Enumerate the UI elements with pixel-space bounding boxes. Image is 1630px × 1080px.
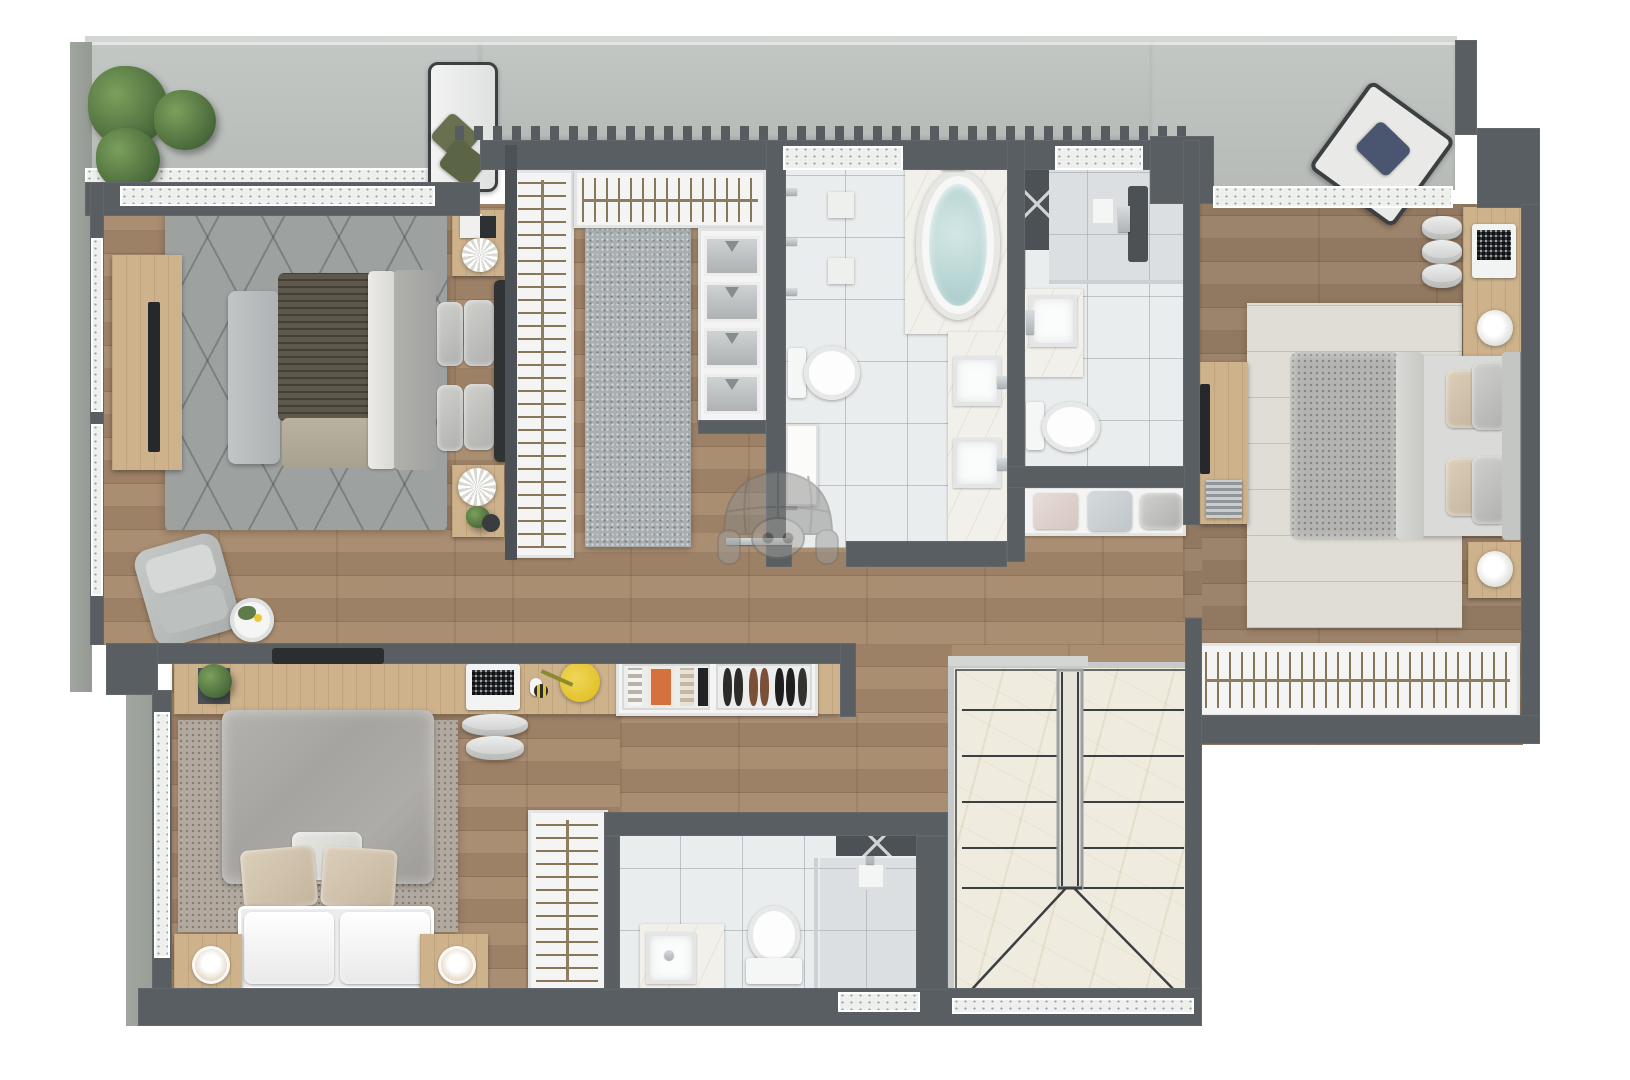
shoe [786, 668, 795, 706]
wall-east [1521, 204, 1540, 744]
faucet-icon [997, 376, 1007, 388]
chair-cushion [466, 736, 524, 760]
window-bath2 [1055, 146, 1143, 170]
folded-scarf [648, 666, 674, 708]
tv-icon [148, 302, 160, 452]
shoe [775, 668, 784, 706]
staircase-detail [948, 662, 1198, 1012]
wall-bath3-north [604, 812, 948, 836]
shower-head-icon [856, 862, 886, 890]
wall-bath-divider [1007, 140, 1025, 562]
wall-balcony-divider [1150, 136, 1214, 204]
vessel-sink [953, 438, 1001, 488]
wall-tv-icon [272, 648, 384, 664]
pillow [240, 845, 319, 911]
pig-watermark [712, 460, 844, 572]
wall-niche [828, 258, 854, 284]
wall-bath2-south [1007, 466, 1185, 488]
folded-shirt [704, 282, 760, 322]
folded-shirt [704, 236, 760, 276]
shower-glass-partition [1049, 280, 1183, 284]
chair-cushion [1422, 216, 1462, 240]
pillow [464, 384, 494, 450]
chair-cushion [1422, 240, 1462, 264]
flower-lamp [458, 468, 496, 506]
window-master-west [91, 238, 103, 412]
vessel-sink [1029, 295, 1077, 347]
window-lower-bedroom [154, 712, 170, 958]
decor-disc [482, 514, 500, 532]
wall-bath3-east [916, 836, 948, 990]
window-bath3 [838, 992, 920, 1012]
belt-coil [628, 668, 642, 706]
glass-lamp [192, 946, 230, 984]
wall-bath1-south-b [846, 541, 1007, 567]
window-master-west [91, 424, 103, 596]
table-lamp [1477, 551, 1513, 587]
desk-plant-icon [198, 664, 232, 698]
tub-water [929, 184, 987, 306]
shoe [760, 668, 769, 706]
bathtub [916, 170, 1000, 320]
shoe [734, 668, 743, 706]
gray-duvet [394, 270, 436, 470]
chair-cushion [1422, 264, 1462, 288]
tv-icon [1200, 384, 1210, 474]
hanging-rail-horizontal [582, 178, 758, 222]
master-tv-sideboard [112, 255, 182, 470]
bolster [244, 912, 334, 984]
laptop-icon [466, 664, 520, 710]
wall-sw-corner [106, 643, 158, 695]
faucet-icon [664, 950, 674, 960]
table-lamp [1477, 310, 1513, 346]
right-bedroom-door-floor [1183, 525, 1202, 618]
wall-dash-cap [455, 126, 1195, 140]
wall-ne-block [1477, 128, 1540, 208]
foot-bench [228, 291, 280, 464]
master-bed [278, 268, 510, 470]
exterior-wall-ledge-left [70, 42, 92, 692]
desk-lamp-base [534, 684, 548, 698]
wall-desk [106, 643, 852, 664]
pillow [1472, 456, 1506, 524]
wall-bath2-east [1183, 140, 1200, 525]
duvet-fold [1396, 352, 1424, 540]
vessel-sink [953, 356, 1001, 406]
faucet-icon [1026, 310, 1034, 334]
right-bed [1290, 352, 1522, 540]
hanging-rail-vertical [518, 180, 566, 548]
clutch [698, 668, 708, 706]
towel-hook-icon [785, 188, 797, 195]
folded-towel [1034, 493, 1078, 529]
cushion [1088, 491, 1132, 531]
duct-shaft [1025, 158, 1049, 250]
toilet [748, 906, 800, 964]
towel-hook-icon [785, 238, 797, 245]
shower-glass [814, 858, 818, 992]
shower-column [1128, 186, 1148, 262]
navy-pillow [1354, 120, 1412, 178]
wall-ne-outer [1455, 40, 1477, 135]
shoe [749, 668, 758, 706]
pillow [437, 302, 463, 366]
pleated-lamp [462, 238, 498, 272]
window-bath1 [783, 146, 903, 170]
shoe [723, 668, 732, 706]
candle-dot [254, 614, 262, 622]
lower-hall-floor [620, 714, 948, 816]
pillow [1140, 493, 1182, 529]
toilet [804, 346, 860, 400]
wall-niche [828, 192, 854, 218]
wall-closet-west [505, 145, 517, 560]
desk-chair [462, 710, 528, 762]
stair-landing-terrazzo [952, 998, 1194, 1014]
belt-coil [680, 668, 694, 706]
wall-stairs-east [1185, 618, 1202, 1014]
towel-hook-icon [785, 288, 797, 295]
pillow [1472, 362, 1506, 430]
side-table [230, 598, 274, 642]
pillow [437, 385, 463, 451]
photo-frame [460, 214, 482, 238]
bolster [340, 912, 430, 984]
desk-chair [1416, 216, 1466, 288]
knit-blanket [278, 273, 380, 421]
sheet-fold [368, 271, 396, 469]
folded-shirt [704, 374, 760, 414]
faucet-icon [997, 458, 1007, 470]
shower-drain [1090, 196, 1116, 226]
window-master-north [120, 186, 435, 206]
glass-lamp [438, 946, 476, 984]
pillow [320, 845, 398, 910]
closet-runner-rug [585, 227, 691, 547]
wall-right-bedroom-south [1187, 715, 1540, 744]
plant-shrub-icon [154, 90, 216, 150]
photo-frame [480, 216, 496, 238]
window-right-bedroom [1213, 186, 1453, 208]
hanging-rail-horizontal [1205, 652, 1510, 708]
blanket-fold [282, 418, 380, 468]
stair-rail-cap [948, 656, 1088, 666]
closet-shelf-end-wall [698, 420, 766, 434]
laptop-icon [1472, 224, 1516, 278]
floor-plan-canvas [0, 0, 1630, 1080]
wall-bath3-west [604, 836, 620, 990]
toilet-tank [746, 958, 802, 984]
shoe [798, 668, 807, 706]
shower-head-icon [1118, 206, 1130, 232]
textured-duvet [1290, 352, 1400, 540]
hanging-rail-vertical [536, 820, 598, 982]
toilet [1042, 402, 1100, 452]
wall-desk-endcap [840, 643, 856, 717]
chair-cushion [462, 714, 528, 736]
plant-shrub-icon [96, 128, 160, 190]
decor-radio [1206, 480, 1242, 518]
folded-shirt [704, 328, 760, 368]
pillow [464, 300, 494, 366]
lower-bed [222, 710, 434, 990]
